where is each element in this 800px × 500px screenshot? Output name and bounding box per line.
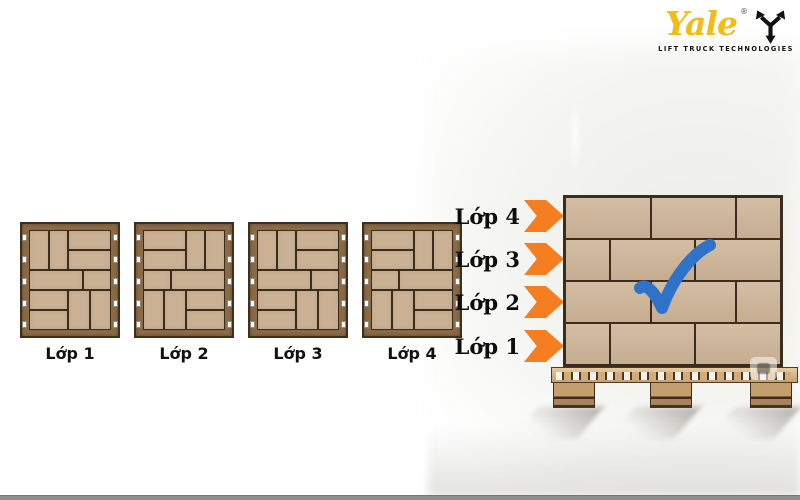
legend-row-lop1: Lớp 1 [452, 328, 564, 364]
carton-top [257, 310, 296, 330]
layer-diagram-3: Lớp 3 [248, 222, 348, 363]
pallet-slat-notch [22, 300, 27, 307]
layer-diagram-2: Lớp 2 [134, 222, 234, 363]
pallet-slat-notch [136, 278, 141, 285]
carton-top [257, 270, 311, 290]
pallet-leg [650, 383, 692, 408]
lift-truck-fork-icon [754, 7, 787, 44]
carton-top [392, 290, 413, 330]
pallet-slat-notch [250, 234, 255, 241]
pallet-slat-notch [113, 234, 118, 241]
pallet-slat-notch [364, 300, 369, 307]
pallet-slat-notch [22, 256, 27, 263]
carton-top [143, 250, 186, 270]
watermark-icon [750, 357, 777, 380]
pallet-slat-notch [227, 321, 232, 328]
carton-top [186, 230, 206, 270]
carton-top [143, 270, 171, 290]
pallet-slat-notch [341, 256, 346, 263]
pallet-slat-notch [364, 278, 369, 285]
carton-top [371, 250, 414, 270]
pallet-slat-notch [22, 278, 27, 285]
registered-trademark: ® [740, 7, 748, 16]
carton-top [186, 310, 225, 330]
pallet-slat-notch [227, 300, 232, 307]
carton-top [371, 290, 392, 330]
carton-top [68, 230, 111, 250]
carton-top [257, 290, 296, 310]
carton-top [414, 290, 453, 310]
pallet-slat-notch [364, 321, 369, 328]
layer-2-label: Lớp 2 [134, 344, 234, 363]
arrow-right-icon [524, 243, 564, 275]
carton-top [311, 270, 339, 290]
carton [565, 197, 651, 239]
carton-top [164, 290, 185, 330]
pallet-slat-notch [227, 256, 232, 263]
watermark-glyph [757, 363, 770, 374]
carton-top [90, 290, 111, 330]
pallet-slat-notch [341, 300, 346, 307]
legend-label-lop2: Lớp 2 [455, 290, 520, 315]
carton-top [399, 270, 453, 290]
pallet-top-view-2 [134, 222, 234, 338]
pallet-top-view-3 [248, 222, 348, 338]
pallet-leg [553, 383, 595, 408]
legend-row-lop2: Lớp 2 [452, 284, 564, 320]
carton-top [371, 230, 414, 250]
carton-top [83, 270, 111, 290]
pallet-slat-notch [136, 256, 141, 263]
carton-top [49, 230, 69, 270]
carton-top [29, 290, 68, 310]
layer-diagram-4: Lớp 4 [362, 222, 462, 363]
pallet-slat-notch [113, 300, 118, 307]
checkmark-icon [628, 238, 720, 322]
carton-top [414, 230, 434, 270]
pallet-top-view-4 [362, 222, 462, 338]
pallet-slat-notch [136, 321, 141, 328]
pallet-slat-notch [227, 234, 232, 241]
pallet-slat-notch [136, 234, 141, 241]
pallet-slat-notch [22, 234, 27, 241]
carton-top [205, 230, 225, 270]
pallet-slat-notch [341, 321, 346, 328]
pallet-leg [750, 383, 792, 408]
carton [565, 239, 610, 281]
pallet-slat-notch [364, 234, 369, 241]
floor-shade [428, 424, 800, 496]
pallet-slat-notch [136, 300, 141, 307]
pallet-slat-notch [22, 321, 27, 328]
carton-top [296, 230, 339, 250]
carton [736, 197, 781, 239]
pallet-slat-notch [113, 321, 118, 328]
carton-top [433, 230, 453, 270]
pallet-slat-notch [250, 300, 255, 307]
layer-diagrams: Lớp 1 Lớp 2 Lớp 3 Lớp 4 [20, 222, 462, 363]
carton-top [186, 290, 225, 310]
yale-logo: Yale ® LIFT TRUCK TECHNOLOGIES [656, 6, 796, 53]
carton-top [68, 250, 111, 270]
pallet-slat-notch [364, 256, 369, 263]
legend-label-lop3: Lớp 3 [455, 247, 520, 272]
carton-top [143, 290, 164, 330]
arrow-right-icon [524, 330, 564, 362]
pallet-slat-notch [341, 234, 346, 241]
stack-row [565, 323, 781, 365]
pallet-slat-notch [250, 278, 255, 285]
carton-pattern-4 [371, 230, 453, 330]
carton-top [296, 290, 317, 330]
arrow-right-icon [524, 200, 564, 232]
carton [651, 197, 735, 239]
pallet-slat-notch [113, 256, 118, 263]
carton-top [277, 230, 297, 270]
yale-logo-row: Yale ® [656, 6, 796, 44]
stack-row [565, 197, 781, 239]
layer-3-label: Lớp 3 [248, 344, 348, 363]
pallet-top-view-1 [20, 222, 120, 338]
carton-top [296, 250, 339, 270]
carton-top [371, 270, 399, 290]
pallet-slat-notch [113, 278, 118, 285]
carton-top [143, 230, 186, 250]
carton-top [29, 270, 83, 290]
carton-top [29, 230, 49, 270]
arrow-right-icon [524, 286, 564, 318]
carton-top [257, 230, 277, 270]
carton-pattern-3 [257, 230, 339, 330]
pallet-slat-notch [250, 256, 255, 263]
layer-diagram-1: Lớp 1 [20, 222, 120, 363]
carton-pattern-2 [143, 230, 225, 330]
layer-1-label: Lớp 1 [20, 344, 120, 363]
legend-row-lop4: Lớp 4 [452, 198, 564, 234]
carton-top [414, 310, 453, 330]
pallet-slat-notch [341, 278, 346, 285]
stage: Yale ® LIFT TRUCK TECHNOLOGIES [0, 0, 800, 500]
carton-pattern-1 [29, 230, 111, 330]
pallet-slat-notch [227, 278, 232, 285]
yale-tagline: LIFT TRUCK TECHNOLOGIES [656, 45, 796, 53]
carton-top [68, 290, 89, 330]
carton [610, 323, 694, 365]
light-streak [566, 88, 584, 183]
carton-top [171, 270, 225, 290]
carton [565, 323, 610, 365]
yale-wordmark: Yale [665, 6, 737, 42]
pallet-slat-notch [250, 321, 255, 328]
carton-top [29, 310, 68, 330]
carton [736, 281, 781, 323]
layer-4-label: Lớp 4 [362, 344, 462, 363]
legend-label-lop1: Lớp 1 [455, 334, 520, 359]
bottom-bar [0, 495, 800, 500]
legend-row-lop3: Lớp 3 [452, 241, 564, 277]
legend-label-lop4: Lớp 4 [455, 204, 520, 229]
carton-top [318, 290, 339, 330]
